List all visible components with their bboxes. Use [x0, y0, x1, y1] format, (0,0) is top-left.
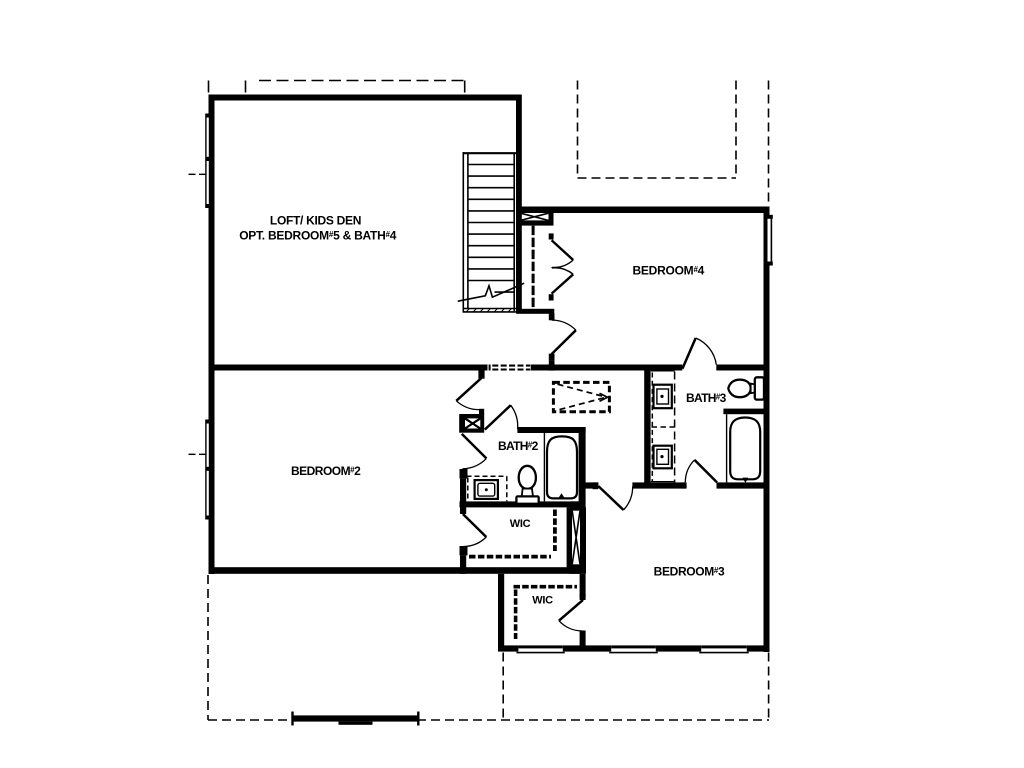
svg-text:WIC: WIC [532, 595, 553, 607]
svg-text:OPT. BEDROOM#5 & BATH#4: OPT. BEDROOM#5 & BATH#4 [239, 229, 397, 243]
svg-text:WIC: WIC [510, 518, 531, 530]
svg-text:LOFT/ KIDS DEN: LOFT/ KIDS DEN [270, 214, 361, 228]
svg-text:BATH#2: BATH#2 [498, 439, 539, 453]
svg-text:BATH#3: BATH#3 [686, 391, 727, 405]
